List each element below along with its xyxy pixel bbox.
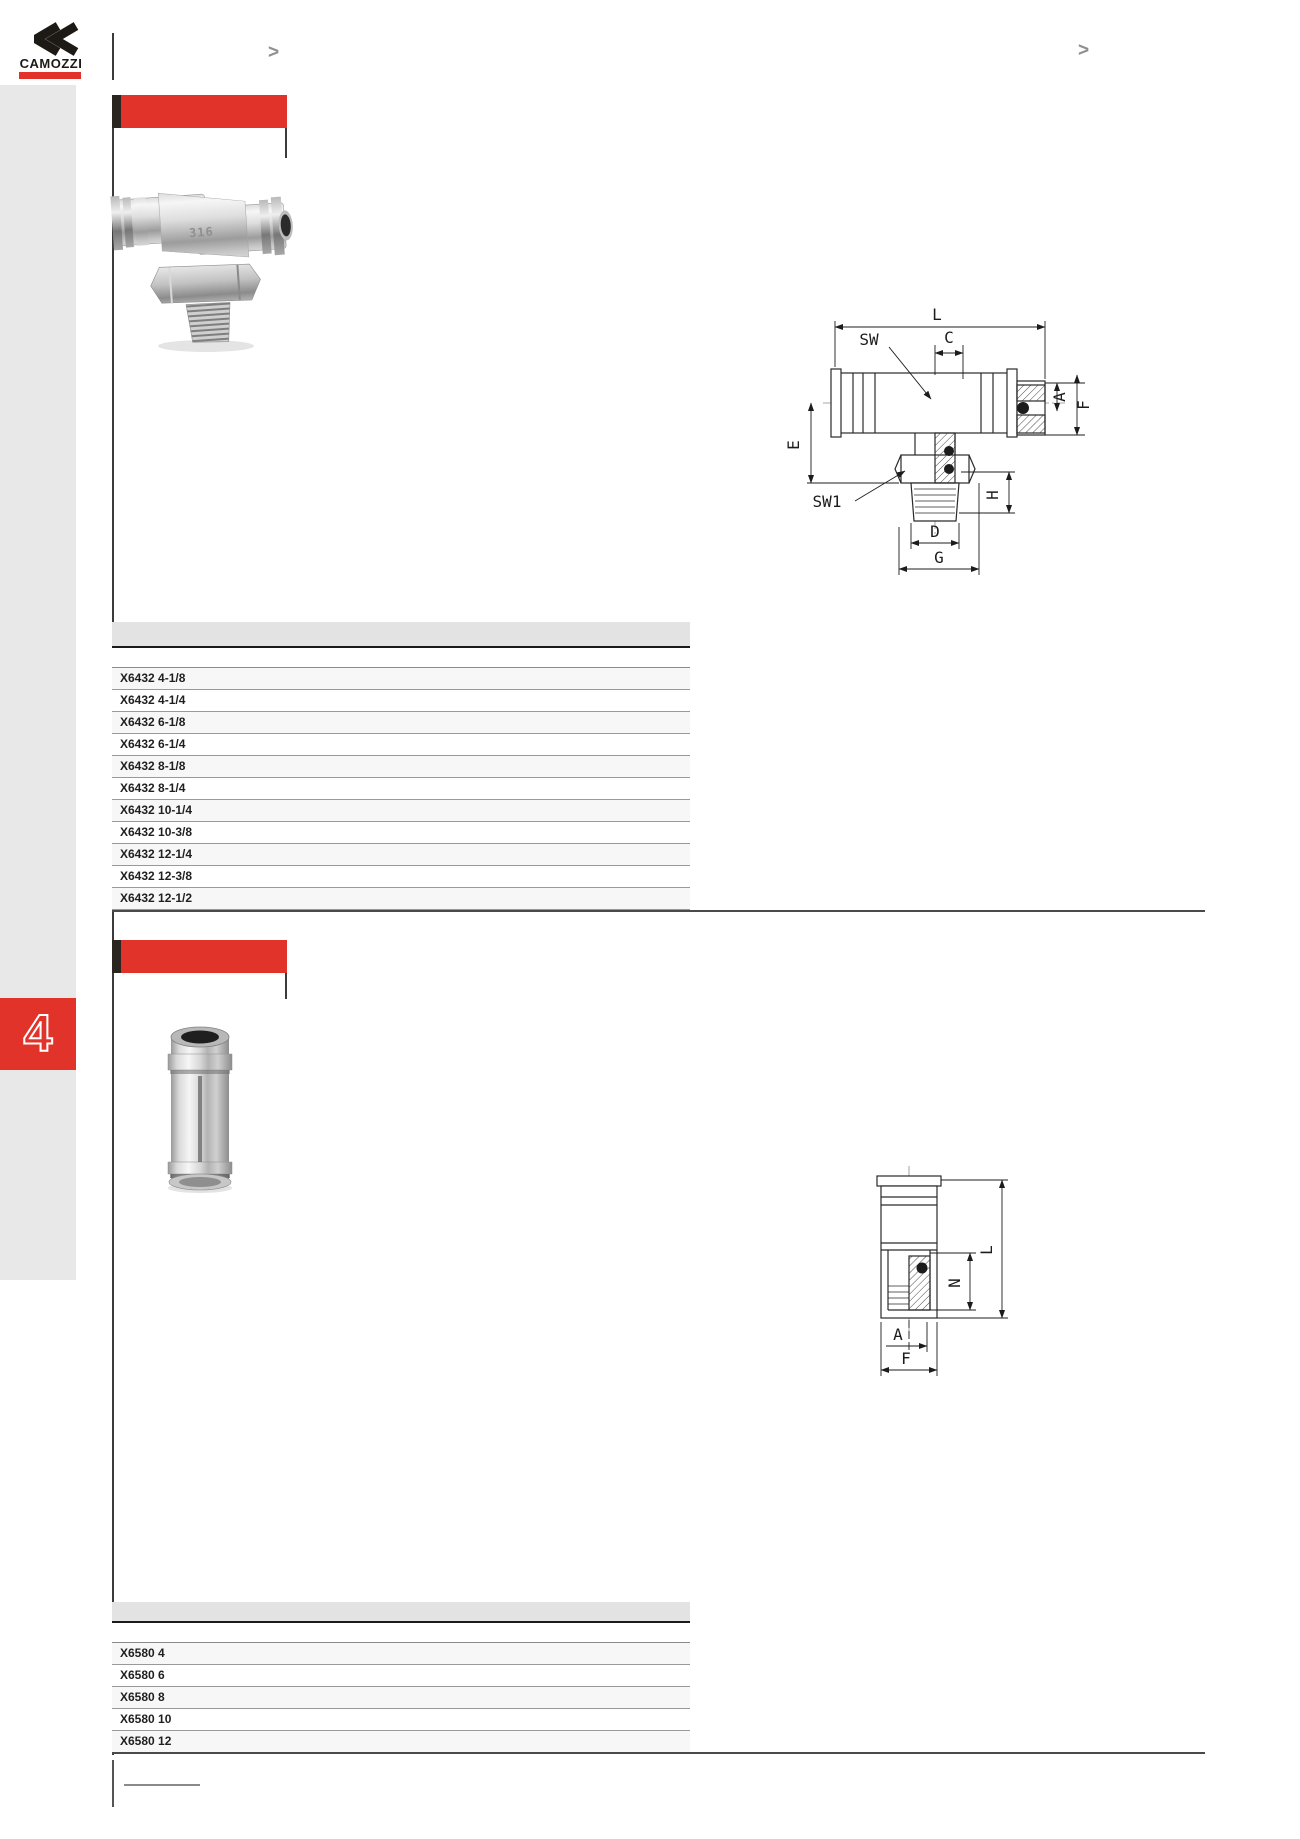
photo-stamp-316: 316 xyxy=(189,224,215,240)
table-subheader-band xyxy=(112,648,690,668)
table-row: X6580 12 xyxy=(112,1731,690,1753)
table-row: X6580 4 xyxy=(112,1643,690,1665)
dim-label-L2: L xyxy=(977,1245,996,1255)
tech-drawing-straight-fitting: L N A F xyxy=(830,1140,1070,1400)
dim-label-E: E xyxy=(784,440,803,450)
table-row: X6580 6 xyxy=(112,1665,690,1687)
dim-label-L: L xyxy=(932,305,942,324)
section1-title-tick xyxy=(112,95,121,128)
section2-title-tail-rule xyxy=(285,973,287,999)
dim-label-C: C xyxy=(944,328,954,347)
table-header-band xyxy=(112,1602,690,1623)
table-row: X6432 12-3/8 xyxy=(112,866,690,888)
footer-page-mark xyxy=(124,1784,200,1786)
table-row: X6432 6-1/4 xyxy=(112,734,690,756)
camozzi-logo-text: CAMOZZI xyxy=(18,56,84,71)
catalog-page: CAMOZZI > > 4 xyxy=(0,0,1300,1839)
table-row: X6432 12-1/2 xyxy=(112,888,690,910)
table-row: X6432 6-1/8 xyxy=(112,712,690,734)
product-photo-tee-fitting: 316 xyxy=(106,146,306,356)
table-row: X6580 10 xyxy=(112,1709,690,1731)
product-table-x6432: X6432 4-1/8 X6432 4-1/4 X6432 6-1/8 X643… xyxy=(112,622,690,910)
table-header-band xyxy=(112,622,690,648)
tech-drawing-tee-fitting: L SW C A F E SW1 H D G xyxy=(765,283,1115,583)
product-table-x6580: X6580 4 X6580 6 X6580 8 X6580 10 X6580 1… xyxy=(112,1602,690,1753)
camozzi-logo-icon xyxy=(24,22,80,56)
table-row: X6432 10-3/8 xyxy=(112,822,690,844)
section2-title-bar xyxy=(121,940,287,973)
table-row: X6580 8 xyxy=(112,1687,690,1709)
dim-label-SW: SW xyxy=(859,330,879,349)
table-subheader-band xyxy=(112,1623,690,1643)
dim-label-F: F xyxy=(1074,400,1093,410)
dim-label-A2: A xyxy=(893,1325,903,1344)
header-divider-line xyxy=(112,33,114,80)
table-row: X6432 8-1/8 xyxy=(112,756,690,778)
logo-red-underline xyxy=(19,72,81,79)
section2-title-tick xyxy=(112,940,121,973)
dim-label-F2: F xyxy=(901,1349,911,1368)
dim-label-H: H xyxy=(983,490,1002,500)
table-row: X6432 8-1/4 xyxy=(112,778,690,800)
section2-bottom-rule xyxy=(112,1752,1205,1754)
section1-title-bar xyxy=(121,95,287,128)
product-photo-straight-fitting xyxy=(160,1024,240,1194)
sidebar-gray-strip xyxy=(0,85,76,1280)
table-row: X6432 4-1/8 xyxy=(112,668,690,690)
chapter-tab: 4 xyxy=(0,998,76,1070)
dim-label-A: A xyxy=(1050,392,1069,402)
dim-label-D: D xyxy=(930,522,940,541)
table-row: X6432 12-1/4 xyxy=(112,844,690,866)
chapter-number: 4 xyxy=(24,1008,53,1060)
table-row: X6432 10-1/4 xyxy=(112,800,690,822)
table-row: X6432 4-1/4 xyxy=(112,690,690,712)
breadcrumb-chevron-icon: > xyxy=(1078,40,1089,62)
footer-vertical-rule xyxy=(112,1760,114,1807)
dim-label-G: G xyxy=(934,548,944,567)
dim-label-N: N xyxy=(945,1278,964,1288)
section1-bottom-rule xyxy=(112,910,1205,912)
dim-label-SW1: SW1 xyxy=(813,492,842,511)
breadcrumb-chevron-icon: > xyxy=(268,42,279,64)
